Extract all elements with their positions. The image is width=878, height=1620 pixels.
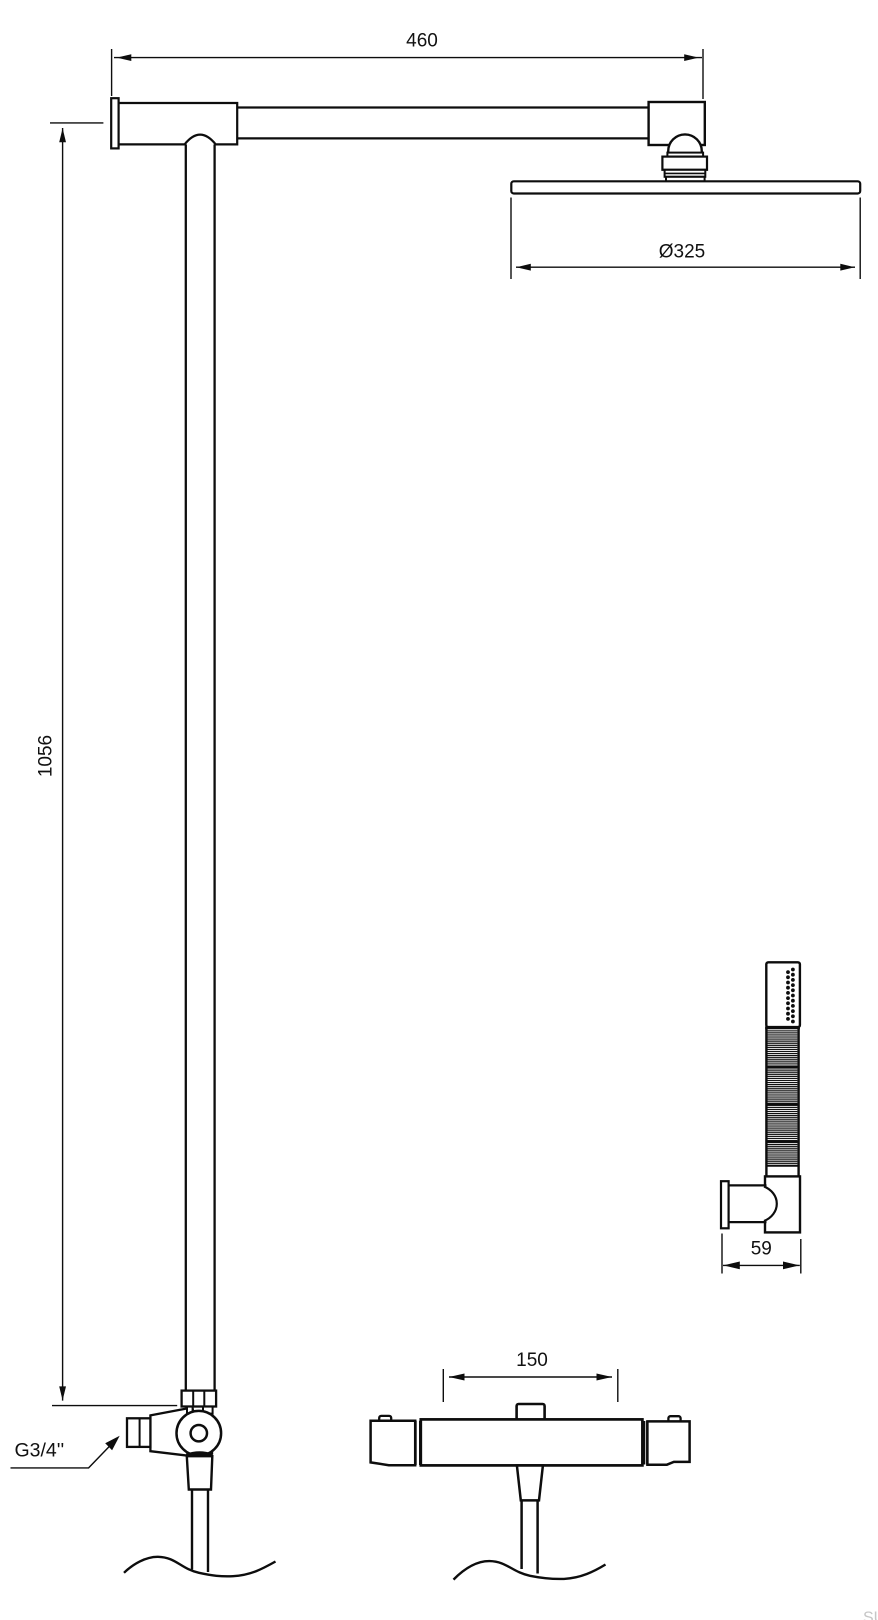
svg-text:G3/4'': G3/4'' — [15, 1440, 65, 1462]
svg-text:Ø325: Ø325 — [659, 241, 705, 262]
svg-text:150: 150 — [516, 1350, 548, 1371]
svg-text:SU: SU — [863, 1610, 878, 1620]
svg-text:59: 59 — [751, 1238, 772, 1259]
svg-text:460: 460 — [406, 30, 438, 51]
svg-text:1056: 1056 — [35, 735, 56, 777]
